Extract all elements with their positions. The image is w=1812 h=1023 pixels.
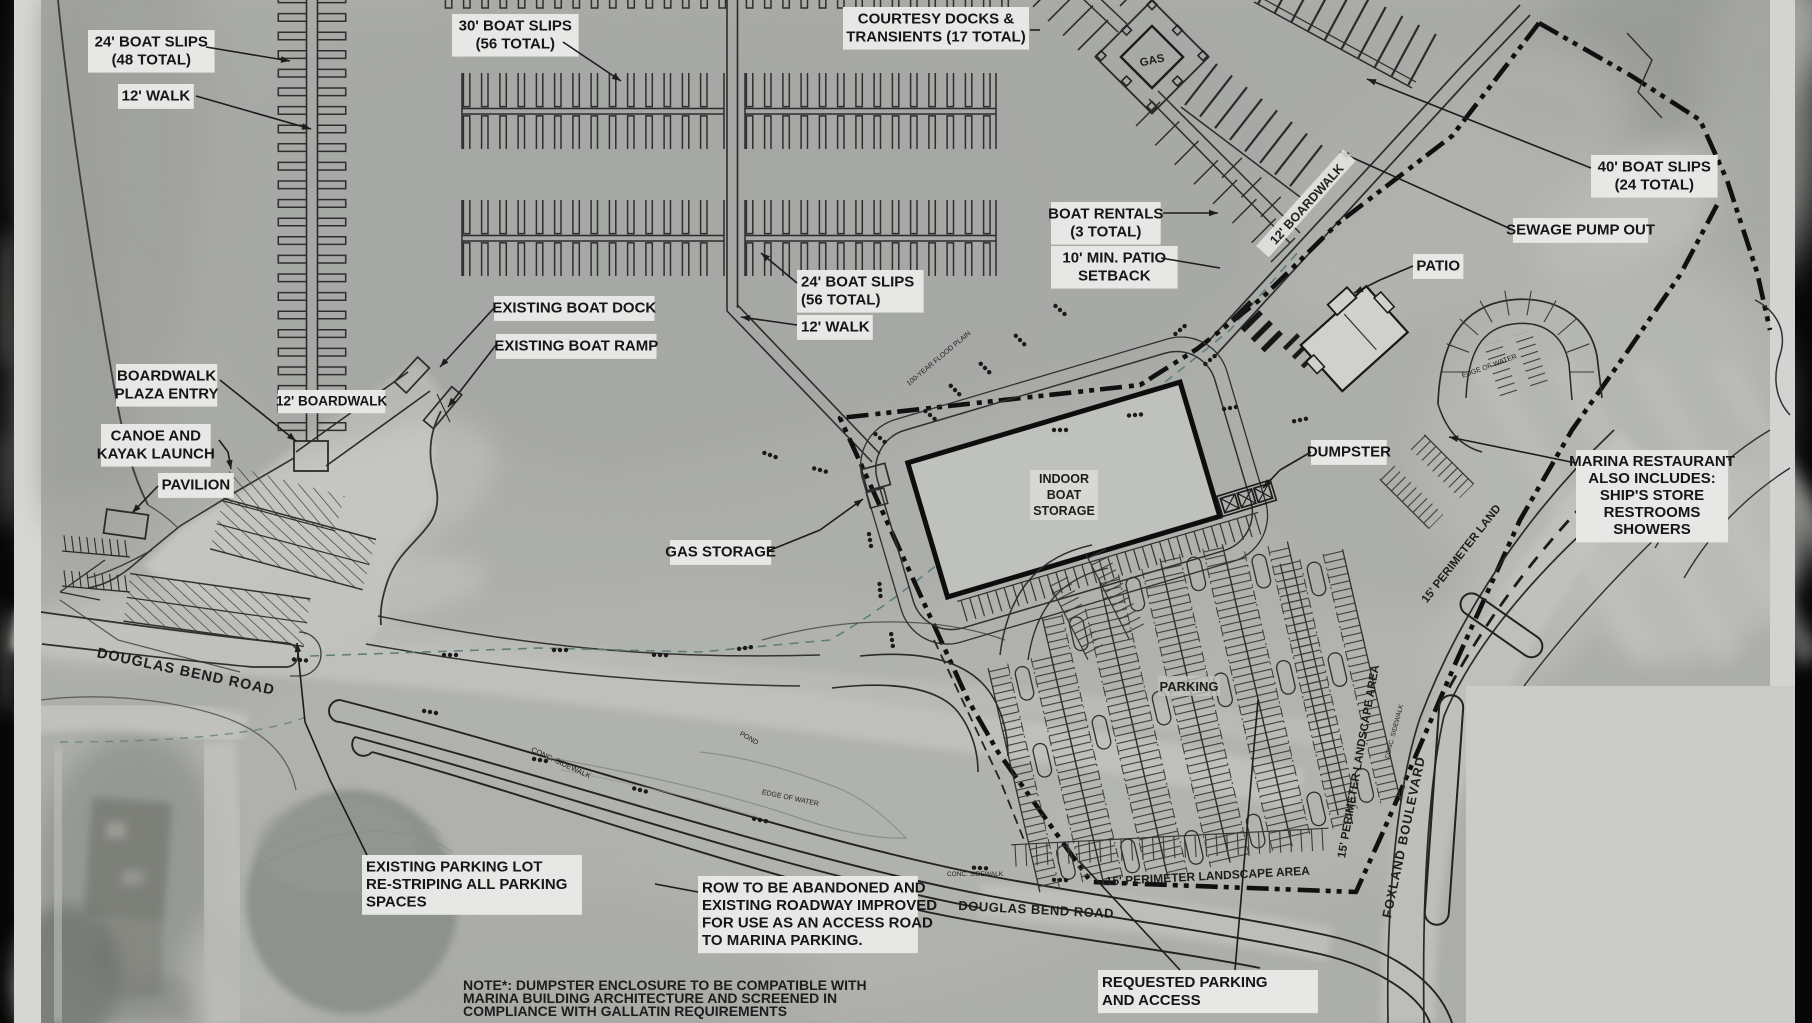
svg-text:EXISTING BOAT DOCK: EXISTING BOAT DOCK <box>492 300 656 317</box>
svg-text:40' BOAT SLIPS: 40' BOAT SLIPS <box>1598 159 1711 176</box>
svg-text:BOARDWALK: BOARDWALK <box>117 368 216 385</box>
svg-text:12' WALK: 12' WALK <box>801 319 870 336</box>
svg-text:CANOE AND: CANOE AND <box>111 428 201 445</box>
svg-text:STORAGE: STORAGE <box>1033 504 1095 518</box>
svg-text:ROW TO BE ABANDONED AND: ROW TO BE ABANDONED AND <box>702 880 926 897</box>
svg-text:TRANSIENTS (17 TOTAL): TRANSIENTS (17 TOTAL) <box>846 28 1025 45</box>
svg-text:RESTROOMS: RESTROOMS <box>1604 504 1701 521</box>
svg-text:MARINA RESTAURANT: MARINA RESTAURANT <box>1569 453 1735 470</box>
svg-text:12' BOARDWALK: 12' BOARDWALK <box>276 394 387 409</box>
svg-text:SEWAGE PUMP OUT: SEWAGE PUMP OUT <box>1506 222 1655 239</box>
svg-text:TO MARINA PARKING.: TO MARINA PARKING. <box>702 932 863 949</box>
svg-text:(56 TOTAL): (56 TOTAL) <box>476 35 555 52</box>
svg-text:KAYAK LAUNCH: KAYAK LAUNCH <box>97 445 215 462</box>
svg-text:PAVILION: PAVILION <box>162 477 231 494</box>
svg-text:EXISTING BOAT RAMP: EXISTING BOAT RAMP <box>494 338 658 355</box>
svg-text:(48 TOTAL): (48 TOTAL) <box>112 51 191 68</box>
svg-text:BOAT RENTALS: BOAT RENTALS <box>1048 206 1163 223</box>
svg-text:(24 TOTAL): (24 TOTAL) <box>1615 176 1694 193</box>
svg-text:DUMPSTER: DUMPSTER <box>1307 444 1391 461</box>
svg-text:REQUESTED PARKING: REQUESTED PARKING <box>1102 974 1301 991</box>
svg-text:PARKING: PARKING <box>1160 679 1219 694</box>
svg-text:24' BOAT SLIPS: 24' BOAT SLIPS <box>801 274 914 291</box>
svg-text:FOR USE AS AN ACCESS ROAD: FOR USE AS AN ACCESS ROAD <box>702 915 933 932</box>
svg-text:SPACES: SPACES <box>366 894 427 911</box>
svg-text:SHIP'S STORE: SHIP'S STORE <box>1600 487 1704 504</box>
svg-text:30' BOAT SLIPS: 30' BOAT SLIPS <box>459 18 572 35</box>
svg-text:SHOWERS: SHOWERS <box>1613 521 1691 538</box>
svg-text:GAS STORAGE: GAS STORAGE <box>665 544 776 561</box>
svg-text:SETBACK: SETBACK <box>1078 267 1151 284</box>
svg-text:PLAZA ENTRY: PLAZA ENTRY <box>115 385 219 402</box>
svg-text:ALSO INCLUDES:: ALSO INCLUDES: <box>1588 470 1716 487</box>
svg-text:12' WALK: 12' WALK <box>122 88 191 105</box>
svg-text:EXISTING PARKING LOT: EXISTING PARKING LOT <box>366 859 542 876</box>
svg-text:BOAT: BOAT <box>1047 488 1082 502</box>
svg-text:(56 TOTAL): (56 TOTAL) <box>801 291 880 308</box>
svg-text:(3 TOTAL): (3 TOTAL) <box>1070 223 1141 240</box>
svg-text:COURTESY DOCKS &: COURTESY DOCKS & <box>858 11 1015 28</box>
svg-text:24' BOAT SLIPS: 24' BOAT SLIPS <box>95 34 208 51</box>
svg-text:INDOOR: INDOOR <box>1039 472 1089 486</box>
svg-text:EXISTING ROADWAY IMPROVED: EXISTING ROADWAY IMPROVED <box>702 897 937 914</box>
svg-text:COMPLIANCE WITH GALLATIN REQUI: COMPLIANCE WITH GALLATIN REQUIREMENTS <box>463 1003 787 1019</box>
svg-text:PATIO: PATIO <box>1416 258 1460 275</box>
svg-text:10' MIN. PATIO: 10' MIN. PATIO <box>1062 250 1166 267</box>
svg-text:RE-STRIPING ALL PARKING: RE-STRIPING ALL PARKING <box>366 876 567 893</box>
svg-text:AND ACCESS: AND ACCESS <box>1102 992 1201 1009</box>
svg-text:CONC. SIDEWALK: CONC. SIDEWALK <box>947 871 1004 878</box>
